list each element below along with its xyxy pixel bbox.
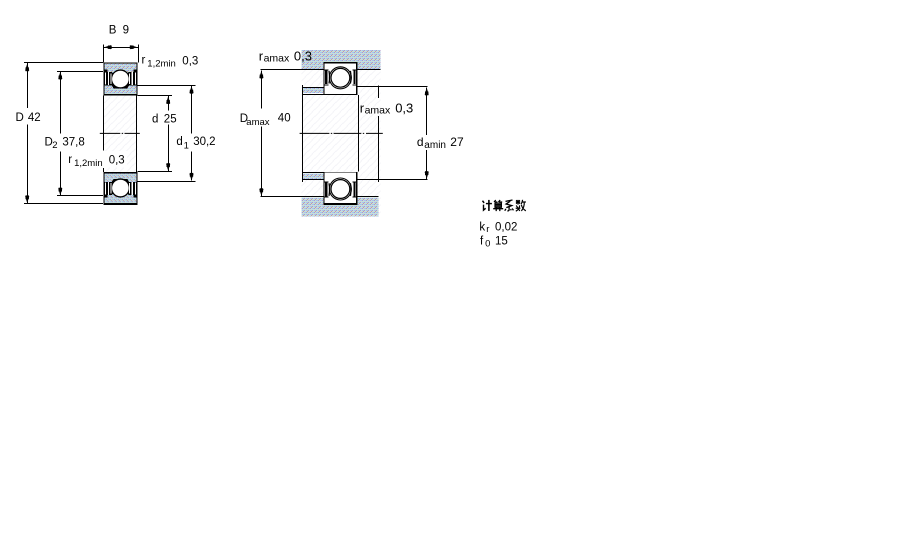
svg-text:1: 1 [184,141,189,152]
svg-text:d: d [176,136,182,148]
svg-text:0,3: 0,3 [395,101,413,116]
svg-text:15: 15 [495,236,508,248]
svg-text:0,3: 0,3 [109,154,125,166]
svg-text:25: 25 [164,113,177,125]
svg-text:amin: amin [424,140,446,151]
svg-text:2: 2 [52,140,57,151]
svg-text:D: D [16,112,24,124]
svg-text:amax: amax [264,52,290,64]
svg-text:27: 27 [450,135,464,149]
svg-text:1,2min: 1,2min [147,58,176,69]
svg-text:30,2: 30,2 [193,136,215,148]
svg-text:42: 42 [28,112,41,124]
svg-text:0,3: 0,3 [294,49,312,64]
svg-text:k: k [479,221,485,233]
svg-text:0,02: 0,02 [495,221,517,233]
svg-text:amax: amax [365,104,391,116]
svg-text:0,3: 0,3 [182,55,198,67]
svg-text:9: 9 [123,25,129,37]
svg-text:d: d [417,135,424,149]
svg-text:r: r [142,55,146,67]
svg-text:B: B [109,25,117,37]
svg-text:amax: amax [246,117,269,128]
svg-text:r: r [68,154,72,166]
svg-text:37,8: 37,8 [62,136,84,148]
svg-text:40: 40 [278,112,291,124]
svg-text:r: r [486,224,489,235]
svg-text:0: 0 [485,238,490,249]
svg-text:1,2min: 1,2min [74,158,103,169]
svg-text:d: d [152,113,158,125]
